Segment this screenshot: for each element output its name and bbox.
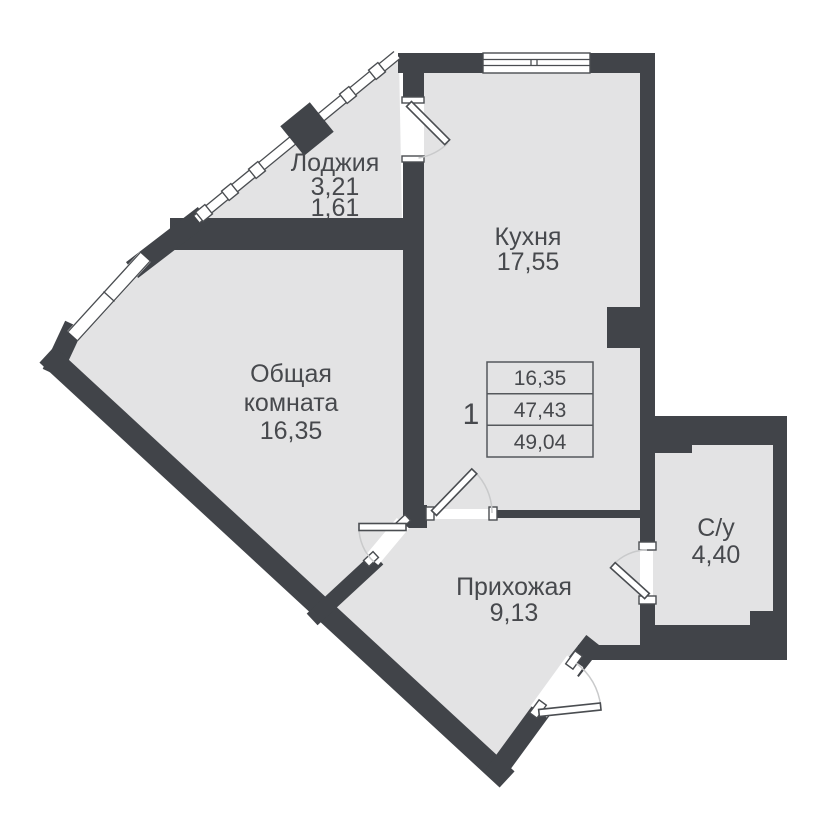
label-living-name-line2: комната	[244, 389, 339, 417]
summary-area-without-loggia: 47,43	[514, 399, 567, 422]
label-living-name-line1: Общая	[250, 360, 332, 388]
wall-pilaster	[607, 307, 640, 348]
door-jamb	[639, 596, 656, 604]
wall-right-upper	[640, 53, 655, 550]
apartment-number: 1	[463, 398, 480, 431]
kitchen-window	[483, 53, 590, 73]
wall-bathroom-bottom-step	[750, 611, 773, 625]
wall-bathroom-top	[655, 416, 787, 445]
floor-plan-drawing: 1 16,35 47,43 49,04 Лоджия 3,21 1,61 Кух…	[0, 0, 828, 828]
label-bathroom-area: 4,40	[692, 541, 741, 569]
label-hallway-name: Прихожая	[456, 573, 572, 601]
wall-hallway-partition	[492, 510, 640, 518]
label-kitchen-area: 17,55	[497, 248, 560, 276]
label-hallway-area: 9,13	[490, 599, 539, 627]
wall-bathroom-bottom	[653, 625, 787, 660]
summary-living-area: 16,35	[514, 367, 567, 390]
wall-divider-lower	[403, 158, 424, 518]
label-kitchen-name: Кухня	[495, 223, 562, 251]
wall-divider-upper	[403, 58, 424, 103]
label-bathroom-name: С/у	[697, 514, 735, 542]
wall-bathroom-top-notch	[655, 445, 692, 453]
wall-bathroom-right	[773, 416, 787, 660]
door-leaf	[359, 524, 406, 531]
label-loggia-area-counted: 1,61	[311, 194, 360, 222]
label-living-area: 16,35	[260, 417, 323, 445]
summary-total-area: 49,04	[514, 431, 567, 454]
floor-plan-page: 1 16,35 47,43 49,04 Лоджия 3,21 1,61 Кух…	[0, 0, 828, 828]
door-jamb	[489, 507, 497, 520]
door-jamb	[639, 542, 656, 550]
